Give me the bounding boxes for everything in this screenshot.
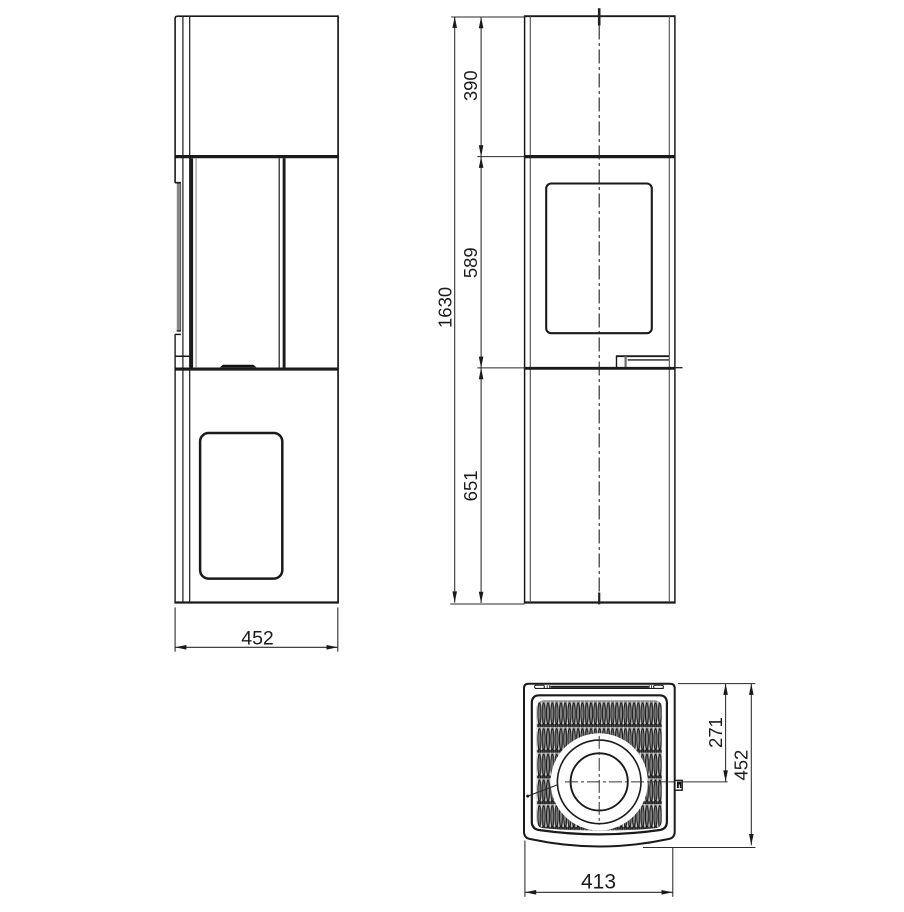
svg-text:452: 452 (731, 750, 752, 781)
svg-text:1630: 1630 (434, 287, 455, 328)
svg-text:271: 271 (705, 717, 726, 748)
svg-text:452: 452 (241, 627, 274, 649)
svg-text:413: 413 (581, 870, 616, 893)
svg-text:651: 651 (460, 470, 481, 501)
svg-text:390: 390 (460, 70, 481, 101)
svg-text:589: 589 (460, 247, 481, 278)
